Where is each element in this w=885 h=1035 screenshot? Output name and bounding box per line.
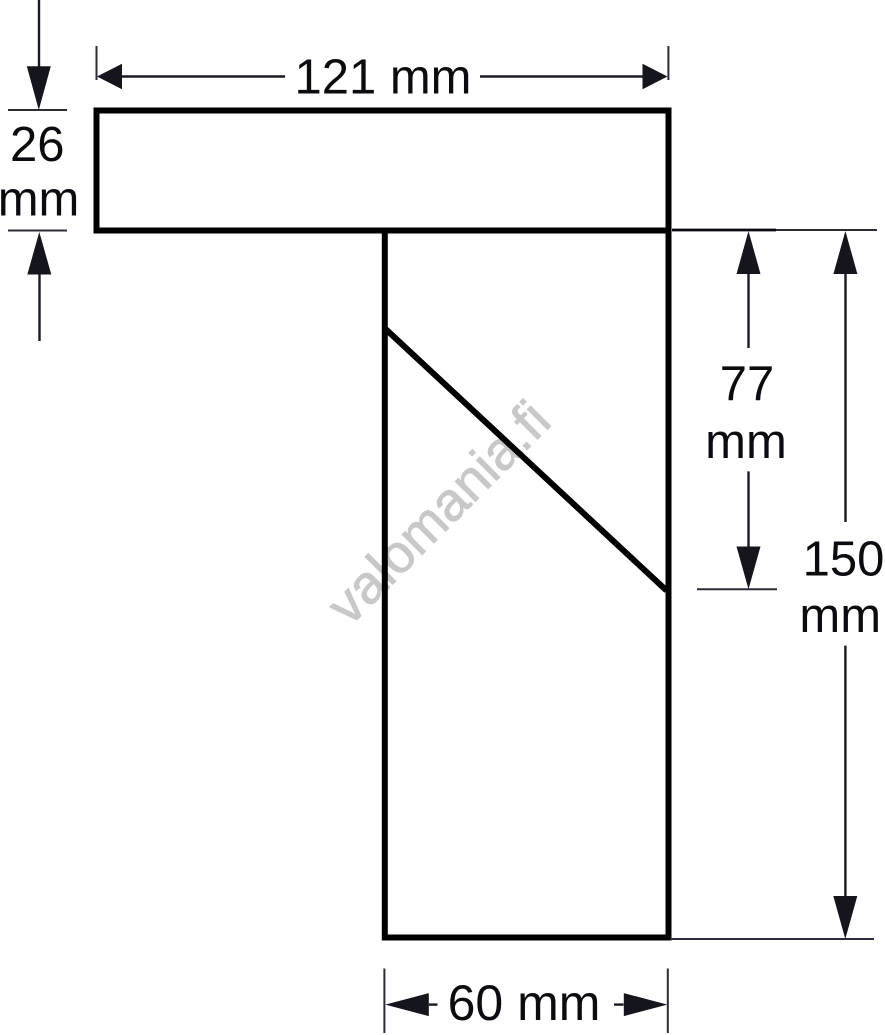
svg-text:121 mm: 121 mm (294, 51, 471, 105)
svg-text:mm: mm (705, 415, 787, 469)
svg-text:26: 26 (10, 118, 65, 172)
svg-text:60 mm: 60 mm (448, 975, 601, 1031)
svg-text:77: 77 (720, 357, 775, 411)
svg-text:mm: mm (799, 589, 881, 643)
svg-text:mm: mm (0, 173, 79, 227)
svg-text:150: 150 (803, 533, 885, 587)
